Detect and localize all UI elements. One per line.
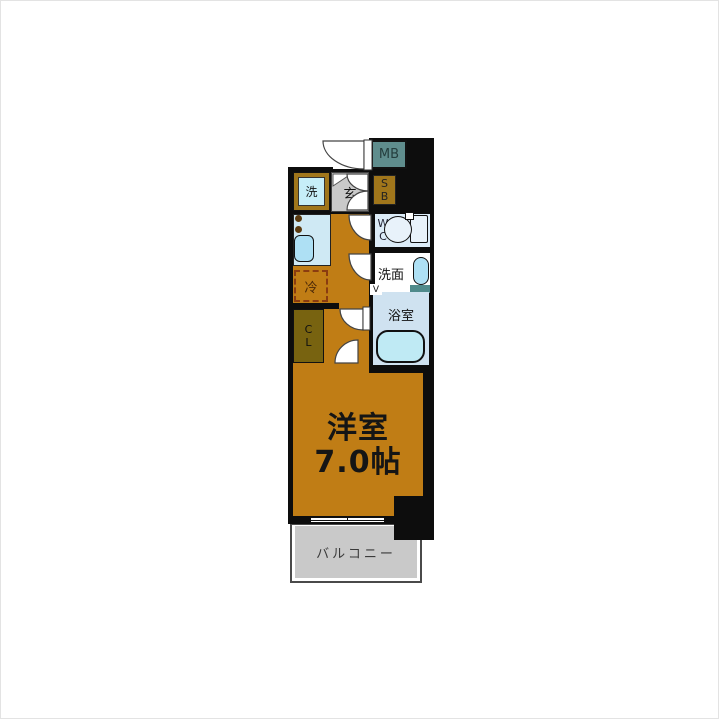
- bathroom-door-mark: V: [370, 284, 382, 295]
- basin-sink-icon: [413, 257, 429, 285]
- washroom-label: 洗面: [378, 264, 404, 283]
- toilet-bowl-icon: [384, 216, 412, 243]
- laundry-label: 洗: [305, 183, 317, 200]
- refrigerator-label: 冷: [304, 277, 317, 296]
- bathroom-label: 浴室: [373, 305, 429, 324]
- stove-burner-icon: [295, 226, 302, 233]
- bathroom: 浴室: [373, 292, 429, 365]
- entrance-label: 玄: [343, 183, 356, 202]
- kitchen-sink-icon: [294, 235, 314, 262]
- closet: C L: [293, 309, 324, 363]
- entrance-door-arc: [323, 141, 364, 169]
- meter-box-label: MB: [379, 147, 399, 162]
- shoe-box: S B: [373, 175, 396, 205]
- closet-letter-l: L: [305, 336, 311, 349]
- shoe-box-letter-s: S: [381, 177, 388, 190]
- balcony-label: バルコニー: [316, 543, 396, 562]
- stove-burner-icon: [295, 215, 302, 222]
- floorplan-canvas: バルコニー MB S B 洗 玄 冷 C L: [0, 0, 719, 719]
- toilet-flush-icon: [405, 212, 414, 220]
- wc-room: W C: [375, 214, 430, 247]
- window-sliding: [311, 517, 384, 523]
- pillar: [394, 496, 434, 540]
- window-mullion: [311, 520, 384, 521]
- laundry-box: 洗: [298, 177, 325, 206]
- refrigerator-space: 冷: [294, 270, 328, 302]
- main-room-size: 7.0帖: [314, 446, 401, 480]
- window-center-tick: [347, 516, 348, 520]
- laundry-frame: 洗: [293, 172, 330, 211]
- fold-door-v: V: [373, 285, 379, 295]
- main-room-label: 洋室 7.0帖: [293, 406, 423, 486]
- main-room-name: 洋室: [327, 412, 389, 446]
- bathtub-icon: [376, 330, 425, 363]
- meter-box: MB: [371, 140, 407, 169]
- wall-right-lower: [423, 373, 434, 516]
- closet-letter-c: C: [305, 323, 313, 336]
- entrance-genkan: 玄: [331, 172, 369, 212]
- shoe-box-letter-b: B: [381, 190, 389, 203]
